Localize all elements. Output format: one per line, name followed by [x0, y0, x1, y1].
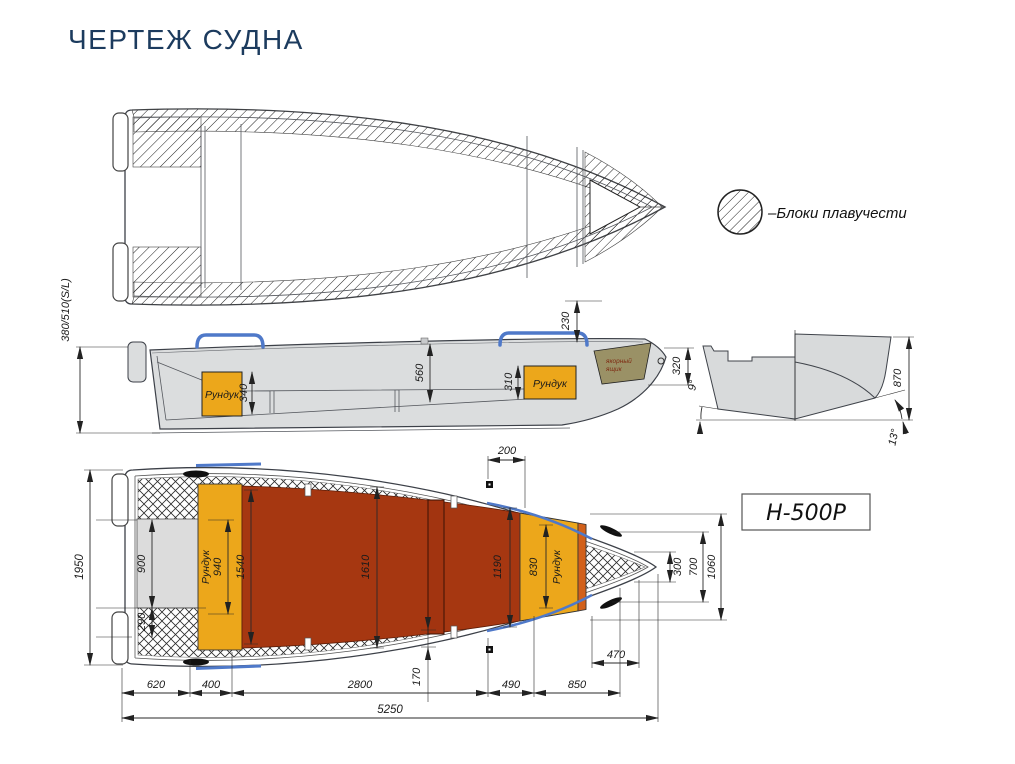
- stern-grab-rail: [197, 335, 263, 347]
- plan-bow-locker-label: Рундук: [551, 549, 563, 584]
- anchor-box-label-line2: ящик: [605, 366, 623, 373]
- dim-bow-locker-height: 310: [503, 372, 515, 391]
- plan-transom-handle-upper: [112, 474, 128, 526]
- mid-frame: [428, 500, 444, 634]
- top-inner-sheer: [134, 117, 652, 297]
- plan-stern-locker-label: Рундук: [200, 549, 212, 584]
- dim-stern-locker-height: 340: [238, 383, 250, 402]
- dim-bow-section-length: 470: [607, 649, 626, 661]
- dim-cockpit-depth: 560: [414, 363, 426, 382]
- legend: –Блоки плавучести: [718, 190, 907, 234]
- dim-bow-sheer-height: 320: [671, 356, 683, 375]
- dim-bow-cleat-offset: 200: [497, 445, 517, 457]
- top-bulkhead-lines: [201, 124, 583, 290]
- drawing-sheet: ЧЕРТЕЖ СУДНА: [0, 0, 1015, 764]
- dim-deadrise-fwd: 13°: [886, 427, 901, 446]
- transom-handle-lower: [113, 243, 128, 301]
- dim-bow-deck-drop: 230: [560, 311, 572, 331]
- plan-view: Рундук Рундук 1950 900 290 940 1540: [74, 445, 727, 722]
- stern-cleat-upper: [183, 471, 209, 478]
- dim-cockpit-width-aft: 1540: [235, 554, 247, 579]
- bow-cleat-upper: [599, 523, 623, 539]
- transom-handle-upper: [113, 113, 128, 171]
- dim-side-deck-width: 170: [411, 667, 423, 686]
- dim-bow-width-1: 300: [672, 557, 684, 576]
- dim-deadrise-aft: 9°: [686, 379, 700, 392]
- side-bow-locker-label: Рундук: [533, 378, 568, 390]
- dim-len-4: 490: [502, 679, 521, 691]
- dim-hull-height: 870: [892, 368, 904, 387]
- section-view: 870 9° 13°: [686, 330, 914, 447]
- stern-cleat-lower: [183, 659, 209, 666]
- dim-cockpit-width-mid: 1610: [360, 554, 372, 579]
- section-left-half: [703, 346, 795, 419]
- anchor-box-label-line1: якорный: [605, 357, 632, 365]
- dim-motor-well-width: 900: [136, 554, 148, 573]
- legend-label: –Блоки плавучести: [767, 205, 907, 222]
- dim-bow-width-2: 700: [688, 557, 700, 576]
- deck-fitting: [421, 338, 428, 344]
- model-label: Н-500Р: [742, 494, 870, 530]
- side-transom-bracket: [128, 342, 146, 382]
- top-view: [113, 109, 665, 305]
- dim-length-overall: 5250: [377, 704, 403, 716]
- bow-cleat-lower: [599, 595, 623, 611]
- boat-drawing: –Блоки плавучести Рундук Рундук якорный …: [0, 0, 1015, 764]
- dim-len-2: 400: [202, 679, 221, 691]
- dim-beam-overall: 1950: [74, 554, 86, 580]
- top-stern-block-hatch-upper: [133, 117, 201, 167]
- dim-stern-locker-width: 940: [212, 557, 224, 576]
- dim-bow-locker-width: 830: [528, 557, 540, 576]
- dim-len-5: 850: [568, 679, 587, 691]
- dim-len-1: 620: [147, 679, 166, 691]
- side-stern-locker-label: Рундук: [205, 389, 240, 401]
- plan-transom-handle-lower: [112, 612, 128, 664]
- dim-len-3: 2800: [347, 679, 373, 691]
- dim-transom-height: 380/510(S/L): [60, 278, 72, 342]
- dim-cockpit-width-fwd: 1190: [492, 554, 504, 579]
- dim-corner-block-width: 290: [136, 612, 148, 632]
- model-label-text: Н-500Р: [766, 501, 846, 526]
- bow-eye: [658, 358, 664, 364]
- dim-bow-width-3: 1060: [706, 554, 718, 579]
- top-stern-block-hatch-lower: [133, 247, 201, 297]
- buoyancy-block-icon: [718, 190, 762, 234]
